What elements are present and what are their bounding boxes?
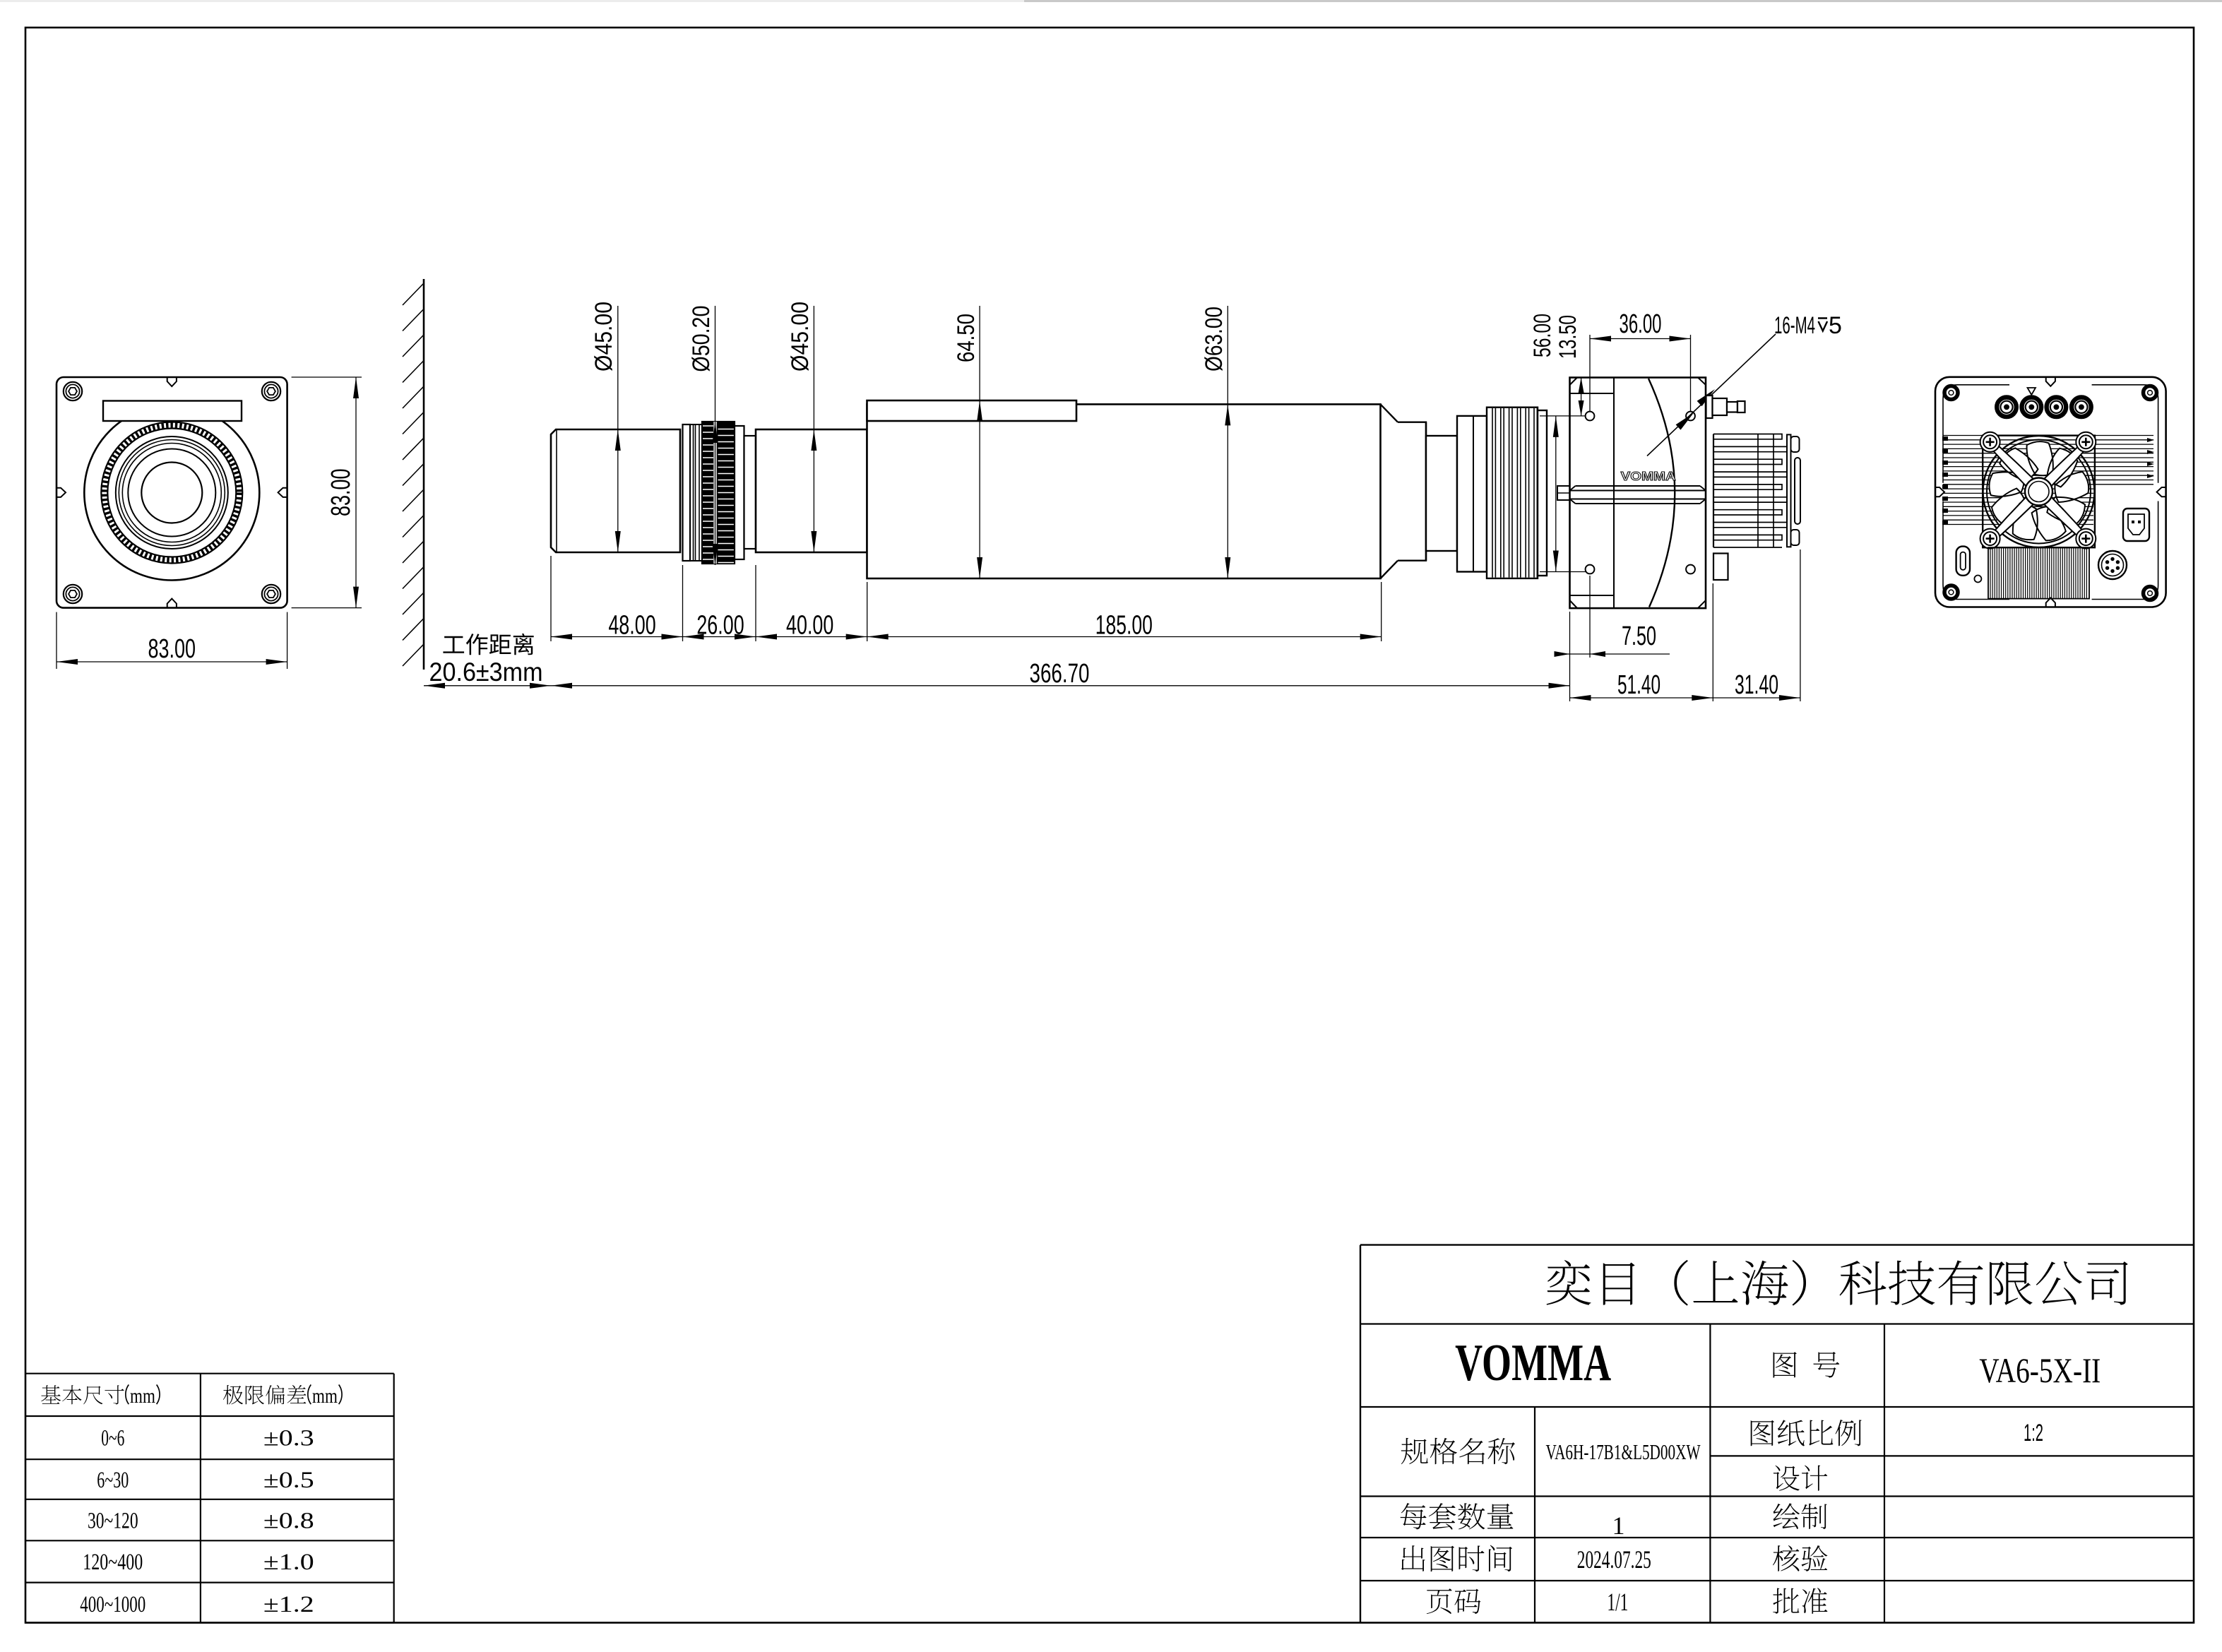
svg-text:366.70: 366.70 [1030,659,1090,689]
svg-text:6~30: 6~30 [97,1468,129,1493]
svg-text:185.00: 185.00 [1095,611,1153,641]
svg-text:26.00: 26.00 [696,611,744,641]
svg-text:±1.2: ±1.2 [263,1592,314,1617]
svg-text:（mm）: （mm） [296,1384,354,1408]
svg-text:Ø45.00: Ø45.00 [787,302,814,372]
svg-text:16-M4: 16-M4 [1774,312,1815,339]
svg-text:±0.8: ±0.8 [263,1509,314,1534]
svg-text:Ø50.20: Ø50.20 [688,306,715,372]
svg-text:Ø45.00: Ø45.00 [590,302,617,372]
svg-text:Ø63.00: Ø63.00 [1201,307,1228,372]
svg-text:VOMMA: VOMMA [1621,469,1676,483]
svg-text:36.00: 36.00 [1620,309,1662,339]
svg-text:48.00: 48.00 [608,611,655,641]
svg-text:1/1: 1/1 [1607,1588,1628,1616]
svg-text:±0.5: ±0.5 [263,1468,314,1493]
svg-text:83.00: 83.00 [326,469,356,517]
svg-text:±0.3: ±0.3 [263,1426,314,1451]
svg-text:7.50: 7.50 [1622,622,1656,651]
svg-text:±1.0: ±1.0 [263,1550,314,1575]
svg-text:20.6±3mm: 20.6±3mm [429,658,543,687]
svg-text:1:2: 1:2 [2024,1420,2043,1446]
svg-text:83.00: 83.00 [148,634,196,664]
svg-text:5: 5 [1829,312,1842,339]
svg-text:56.00: 56.00 [1529,314,1556,357]
svg-text:31.40: 31.40 [1735,670,1778,700]
svg-text:1: 1 [1612,1511,1625,1540]
svg-text:40.00: 40.00 [786,611,833,641]
svg-text:（mm）: （mm） [114,1384,172,1408]
svg-text:30~120: 30~120 [88,1509,138,1534]
svg-text:VA6-5X-II: VA6-5X-II [1979,1350,2101,1390]
svg-text:VA6H-17B1&L5D00XW: VA6H-17B1&L5D00XW [1546,1439,1701,1464]
svg-text:VOMMA: VOMMA [1455,1334,1611,1392]
svg-text:2024.07.25: 2024.07.25 [1577,1545,1651,1574]
svg-text:51.40: 51.40 [1617,670,1660,700]
svg-text:400~1000: 400~1000 [80,1592,145,1617]
svg-text:0~6: 0~6 [101,1426,124,1451]
svg-text:64.50: 64.50 [953,314,980,362]
svg-text:13.50: 13.50 [1555,315,1581,359]
svg-text:120~400: 120~400 [83,1550,143,1575]
